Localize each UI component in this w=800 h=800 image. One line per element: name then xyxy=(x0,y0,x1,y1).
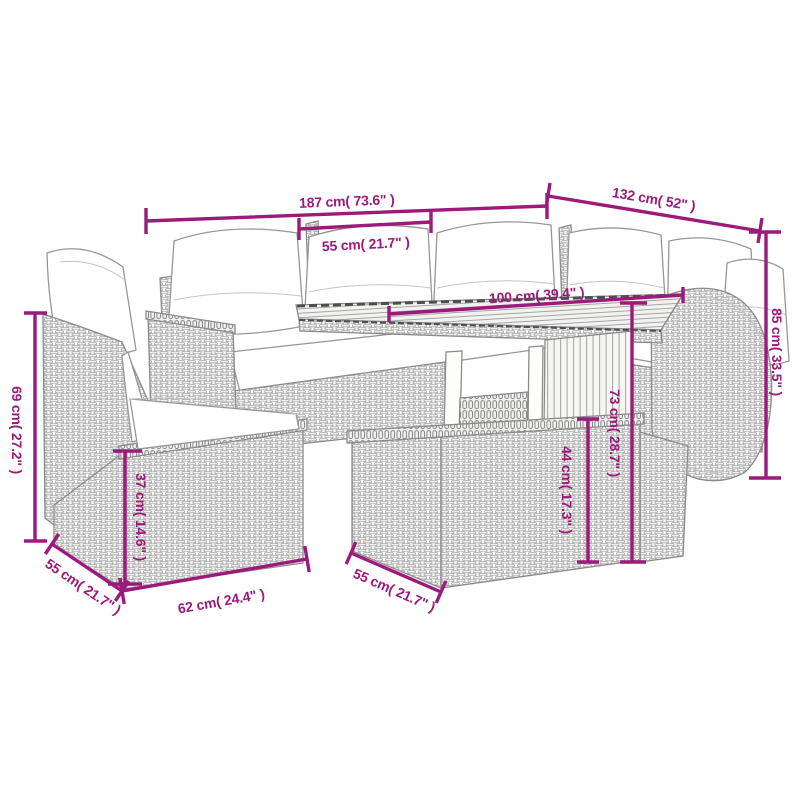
sofa-base-corner xyxy=(640,432,688,562)
footstool xyxy=(347,413,644,588)
dimension-label-sofa-total-width: 187 cm( 73.6" ) xyxy=(299,191,395,211)
dimension-label-stool-height: 37 cm( 14.6" ) xyxy=(133,473,149,561)
furniture-line-art: 187 cm( 73.6" ) 132 cm( 52" ) 55 cm( 21.… xyxy=(0,0,800,800)
dimension-label-table-height: 73 cm( 28.7" ) xyxy=(607,389,623,477)
dimension-label-stool-front-width: 62 cm( 24.4" ) xyxy=(176,586,265,617)
sofa-set-drawing xyxy=(43,221,789,589)
dimension-label-sofa-back-height: 85 cm( 33.5" ) xyxy=(769,308,785,396)
dimension-label-footstool-height: 44 cm( 17.3" ) xyxy=(559,446,575,534)
table-leg xyxy=(528,346,543,429)
dimension-label-chair-back-height: 69 cm( 27.2" ) xyxy=(9,386,25,474)
footstool-side-face xyxy=(352,431,441,588)
product-dimension-diagram: 187 cm( 73.6" ) 132 cm( 52" ) 55 cm( 21.… xyxy=(0,0,800,800)
